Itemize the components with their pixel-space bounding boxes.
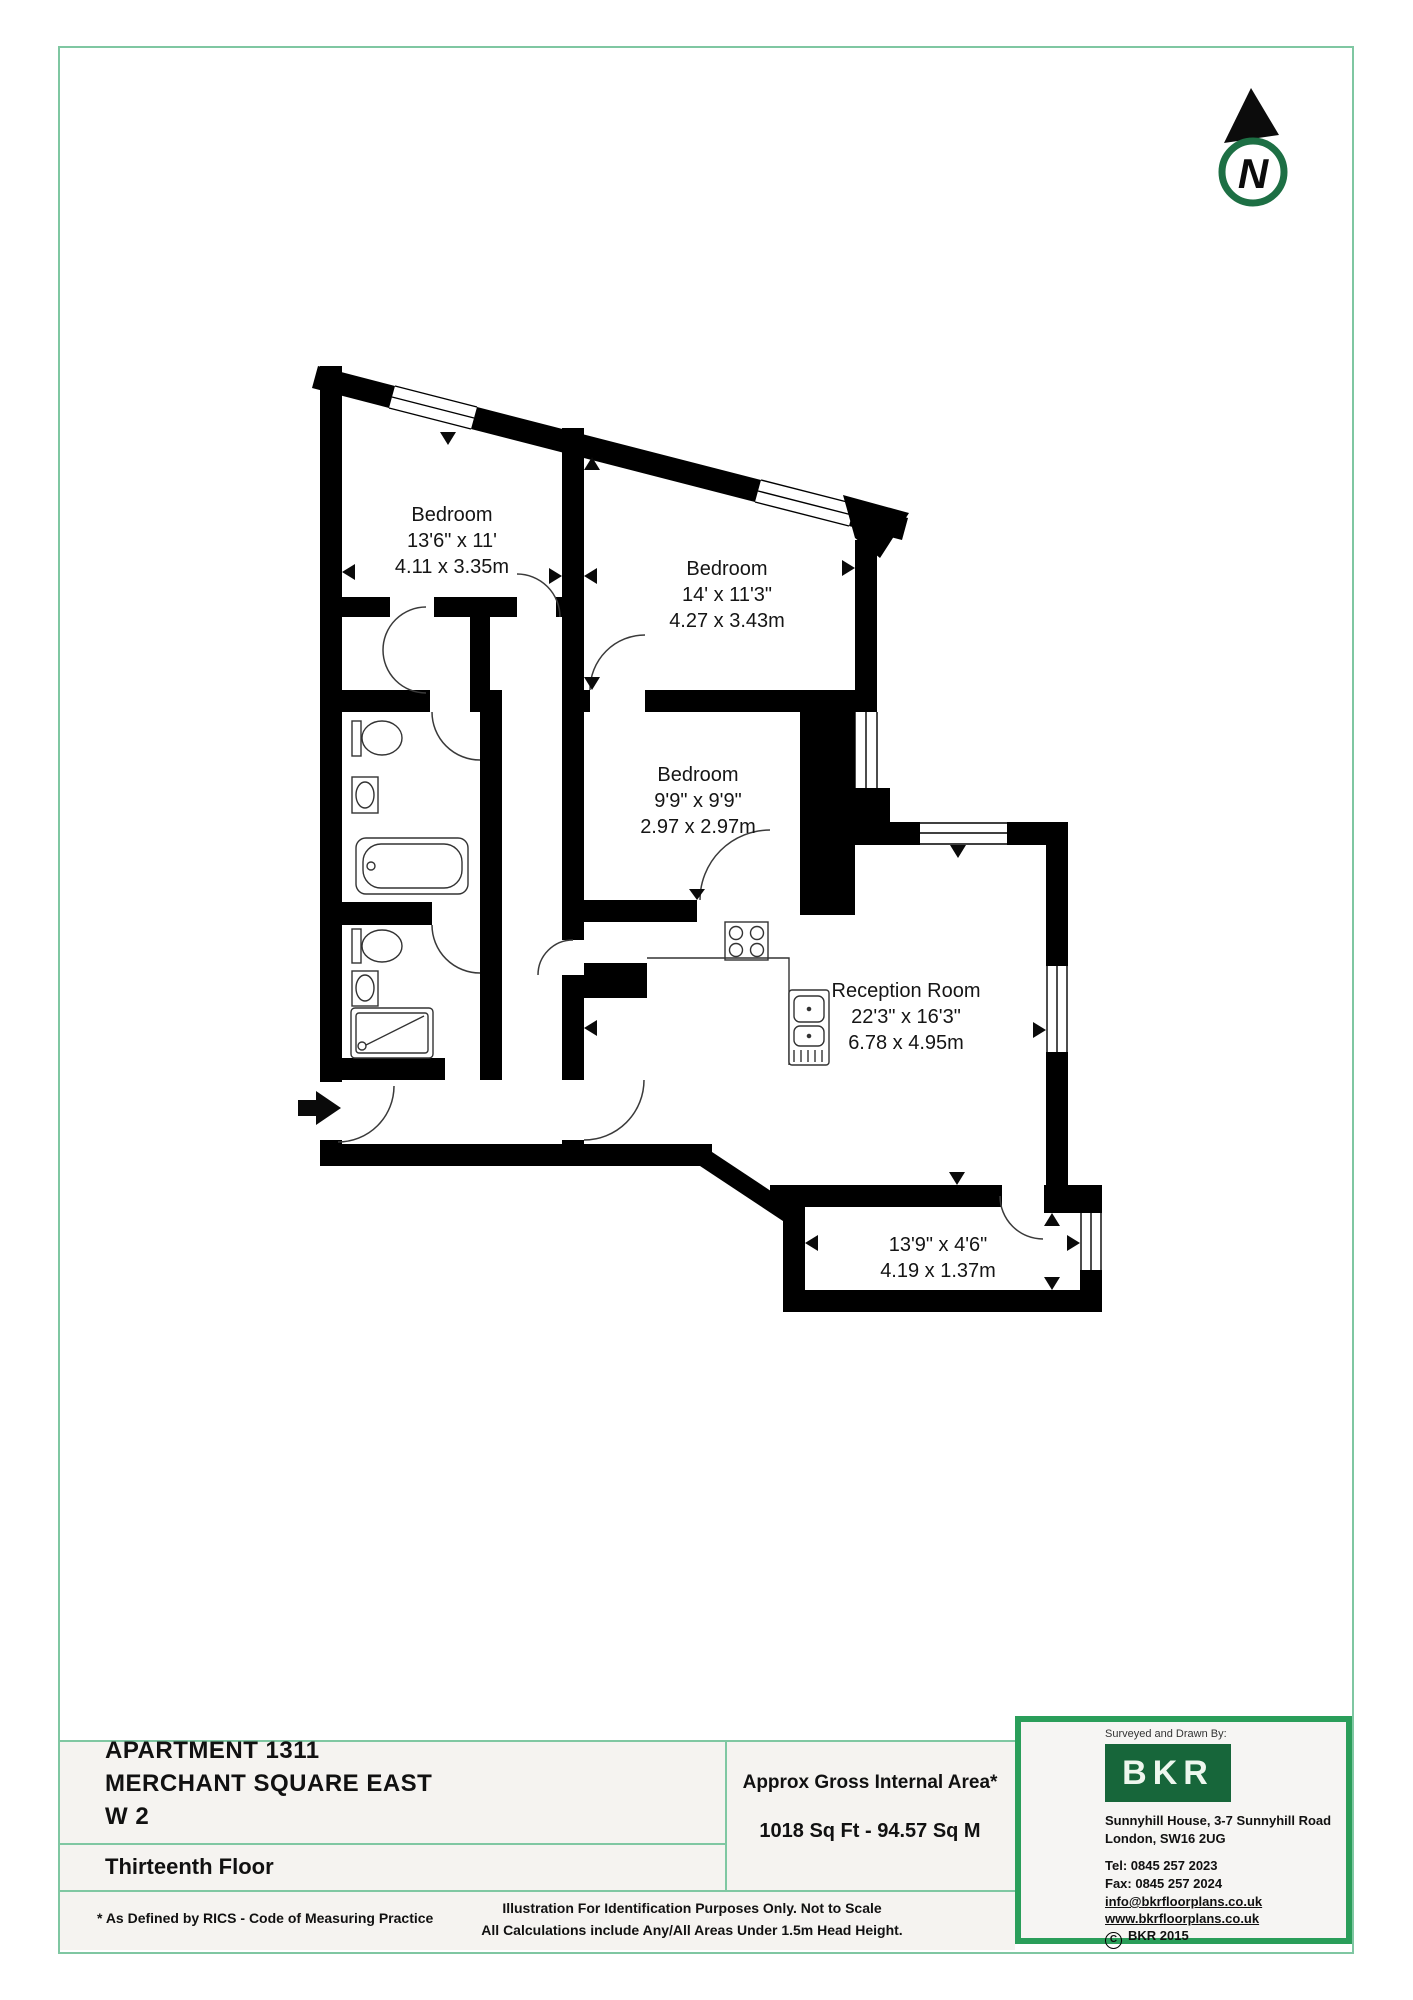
room-label-bedroom1: Bedroom 13'6" x 11' 4.11 x 3.35m [395,502,509,580]
divider [60,1890,1015,1892]
room-label-bedroom2: Bedroom 14' x 11'3" 4.27 x 3.43m [669,556,785,634]
bathroom-kitchen-fixtures [351,721,829,1065]
floor-plan-drawing [0,0,1413,2000]
surveyor-heading: Surveyed and Drawn By: [1105,1728,1227,1740]
disclaimer-line1: Illustration For Identification Purposes… [502,1900,881,1916]
room-label-bedroom3: Bedroom 9'9" x 9'9" 2.97 x 2.97m [640,762,756,840]
kitchen-counter [647,958,789,1065]
room-label-balcony: 13'9" x 4'6" 4.19 x 1.37m [880,1232,996,1284]
toilet-icon [352,721,361,756]
surveyor-web[interactable]: www.bkrfloorplans.co.uk [1105,1910,1259,1928]
rics-note: * As Defined by RICS - Code of Measuring… [97,1910,433,1926]
surveyor-tel: Tel: 0845 257 2023 [1105,1857,1218,1875]
surveyor-email[interactable]: info@bkrfloorplans.co.uk [1105,1893,1262,1911]
property-line3: W 2 [105,1800,432,1833]
area-label: Approx Gross Internal Area* [743,1772,998,1794]
kitchen-sink-icon [789,990,829,1065]
floorplan-page: N Bedroom 13'6" x 11' 4.11 x 3.35m Bedro… [0,0,1413,2000]
area-value: 1018 Sq Ft - 94.57 Sq M [759,1820,980,1843]
property-line2: MERCHANT SQUARE EAST [105,1767,432,1800]
divider [60,1843,725,1845]
entrance-arrow-icon [298,1091,341,1125]
property-line1: APARTMENT 1311 [105,1734,432,1767]
surveyor-fax: Fax: 0845 257 2024 [1105,1875,1222,1893]
divider [725,1740,727,1892]
bkr-logo: BKR [1105,1744,1231,1802]
floor-name: Thirteenth Floor [105,1854,274,1880]
disclaimer-line2: All Calculations include Any/All Areas U… [481,1922,902,1938]
surveyor-address2: London, SW16 2UG [1105,1830,1226,1848]
hob-icon [725,922,768,960]
surveyor-copyright: CBKR 2015 [1105,1927,1189,1949]
toilet-icon [352,929,361,963]
copyright-icon: C [1105,1932,1122,1949]
compass-north-label: N [1238,150,1268,198]
room-label-reception: Reception Room 22'3" x 16'3" 6.78 x 4.95… [826,978,986,1056]
surveyor-address1: Sunnyhill House, 3-7 Sunnyhill Road [1105,1812,1331,1830]
property-title: APARTMENT 1311 MERCHANT SQUARE EAST W 2 [105,1734,432,1833]
